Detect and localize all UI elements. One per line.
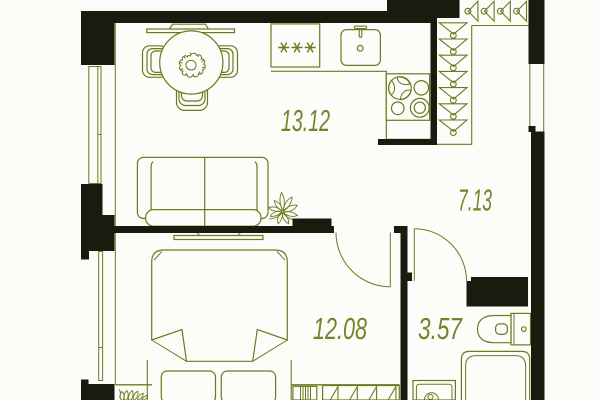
svg-text:13.12: 13.12 [281,103,330,138]
svg-text:12.08: 12.08 [313,311,368,346]
svg-text:7.13: 7.13 [458,183,492,218]
svg-text:3.57: 3.57 [418,311,463,346]
